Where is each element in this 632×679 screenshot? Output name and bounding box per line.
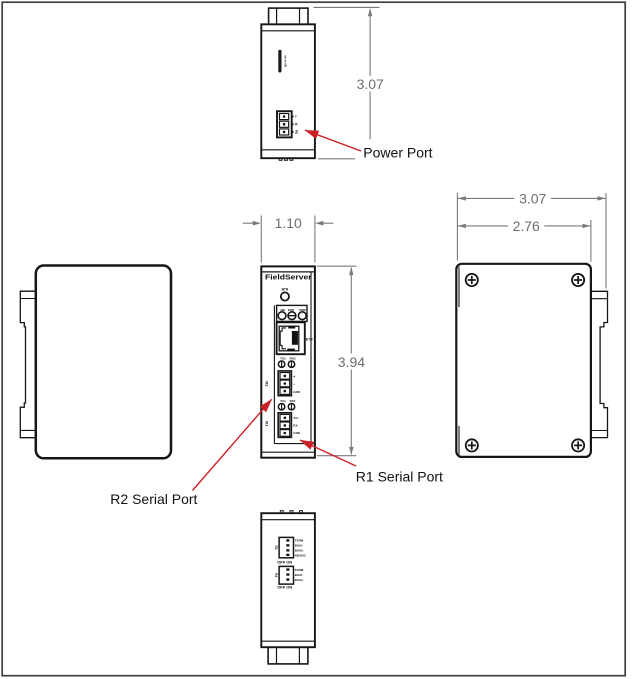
svg-text:OFF ON: OFF ON (277, 560, 292, 565)
svg-text:3.07: 3.07 (519, 191, 546, 207)
svg-text:RX2: RX2 (290, 356, 296, 360)
svg-text:BIAS+: BIAS+ (295, 578, 304, 582)
svg-text:PE: PE (294, 130, 298, 134)
svg-text:TERM: TERM (295, 568, 304, 572)
svg-text:R1 Serial Port: R1 Serial Port (356, 469, 443, 485)
svg-text:−: − (293, 383, 295, 387)
svg-text:R1: R1 (274, 546, 278, 550)
svg-text:BIAS+: BIAS+ (295, 549, 304, 553)
svg-text:3.07: 3.07 (357, 76, 384, 92)
svg-text:R1: R1 (265, 421, 270, 427)
svg-text:R2 Serial Port: R2 Serial Port (110, 491, 197, 507)
svg-text:R2: R2 (274, 573, 278, 577)
svg-text:L: L (294, 116, 298, 118)
svg-text:Power Port: Power Port (363, 145, 432, 161)
svg-text:BIAS-: BIAS- (295, 573, 303, 577)
svg-text:TX+: TX+ (293, 416, 299, 420)
svg-text:1.10: 1.10 (275, 215, 302, 231)
svg-text:RX1: RX1 (290, 399, 296, 403)
svg-text:GND: GND (293, 431, 301, 435)
svg-text:2.76: 2.76 (513, 218, 540, 234)
svg-text:TX1: TX1 (280, 399, 286, 403)
svg-text:3.94: 3.94 (338, 354, 365, 370)
svg-text:+: + (293, 375, 295, 379)
svg-text:RX-: RX- (293, 424, 298, 428)
svg-text:TX2: TX2 (280, 356, 286, 360)
svg-text:ETH: ETH (306, 337, 313, 341)
svg-text:GND: GND (293, 390, 301, 394)
svg-text:R2: R2 (265, 381, 270, 387)
svg-text:485/232: 485/232 (295, 553, 306, 557)
svg-text:BIAS-: BIAS- (295, 544, 303, 548)
svg-text:TERM: TERM (295, 539, 304, 543)
svg-text:FieldServer: FieldServer (265, 273, 312, 282)
svg-text:OFF ON: OFF ON (277, 585, 292, 590)
svg-text:BTN: BTN (282, 288, 289, 292)
svg-text:micro SD: micro SD (284, 55, 288, 67)
